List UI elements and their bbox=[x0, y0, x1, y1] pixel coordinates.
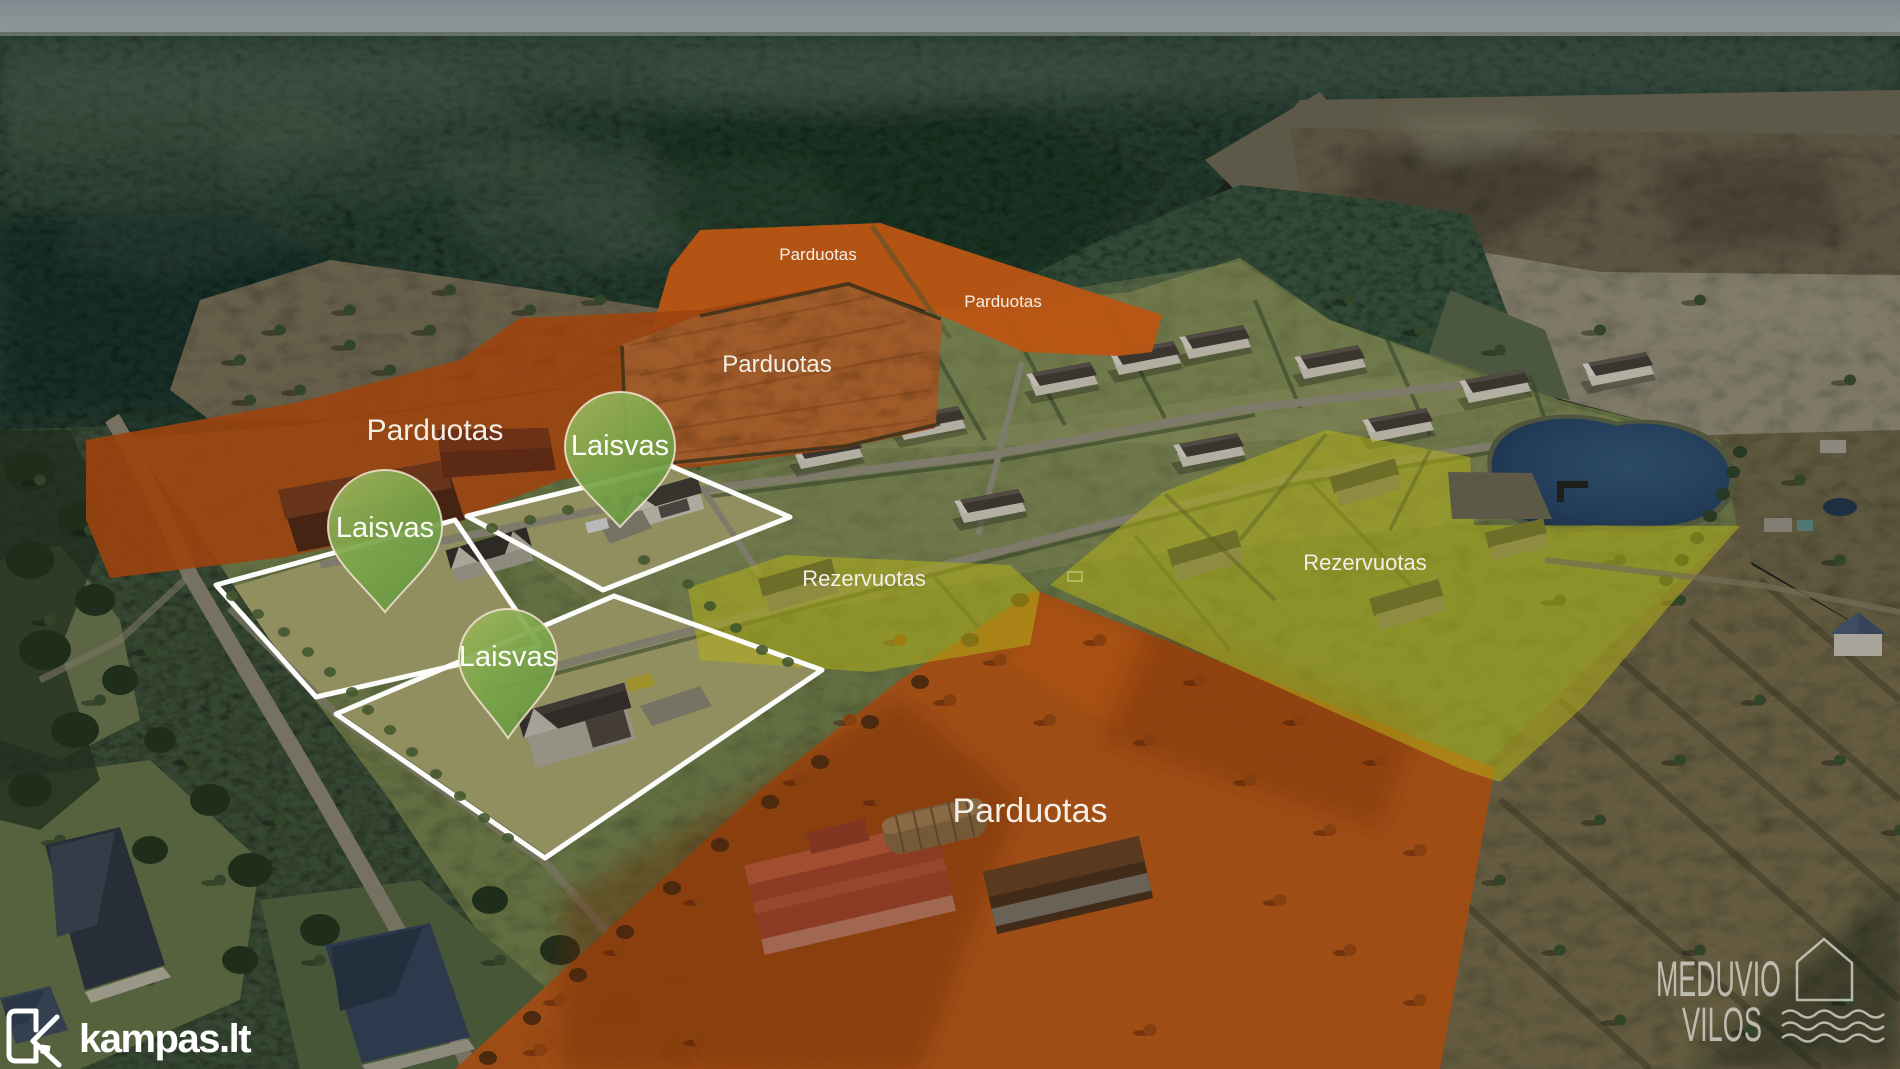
svg-text:Laisvas: Laisvas bbox=[336, 512, 434, 544]
svg-text:Parduotas: Parduotas bbox=[953, 792, 1108, 830]
svg-text:Parduotas: Parduotas bbox=[367, 414, 504, 447]
svg-text:Rezervuotas: Rezervuotas bbox=[1303, 550, 1427, 575]
svg-text:Laisvas: Laisvas bbox=[459, 641, 557, 673]
svg-text:Rezervuotas: Rezervuotas bbox=[802, 566, 926, 591]
svg-text:Laisvas: Laisvas bbox=[571, 430, 669, 462]
svg-text:Parduotas: Parduotas bbox=[722, 351, 831, 378]
svg-text:Parduotas: Parduotas bbox=[964, 292, 1042, 311]
svg-text:Parduotas: Parduotas bbox=[779, 245, 857, 264]
svg-text:kampas.lt: kampas.lt bbox=[79, 1017, 251, 1061]
svg-text:VILOS: VILOS bbox=[1682, 999, 1762, 1052]
